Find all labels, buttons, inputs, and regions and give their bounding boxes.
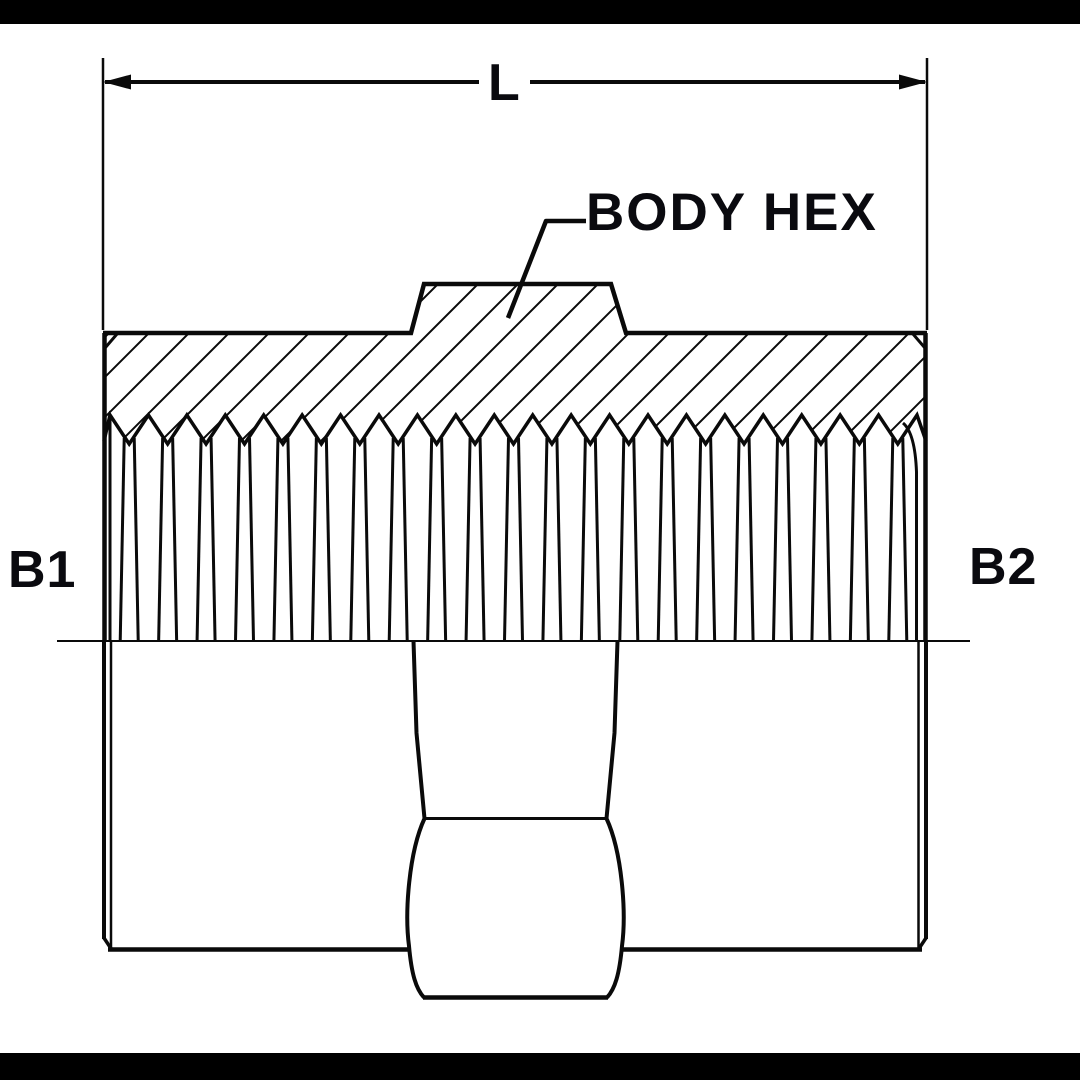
dimension-arrow-right-icon xyxy=(899,75,927,90)
internal-thread-lines xyxy=(110,417,917,641)
screenshot-canvas: L BODY HEX B1 B2 xyxy=(0,0,1080,1080)
port-b2-label: B2 xyxy=(969,541,1037,593)
dimension-arrow-left-icon xyxy=(103,75,131,90)
body-hex-leader-line xyxy=(508,221,586,318)
thread-crest-zigzag xyxy=(104,415,926,444)
body-hex-callout-label: BODY HEX xyxy=(586,186,878,239)
fitting-section-drawing xyxy=(0,0,1080,1080)
dimension-L-label: L xyxy=(479,57,530,109)
body-hex-outline xyxy=(407,641,623,998)
port-b1-label: B1 xyxy=(8,544,76,596)
body-outline xyxy=(103,284,927,950)
